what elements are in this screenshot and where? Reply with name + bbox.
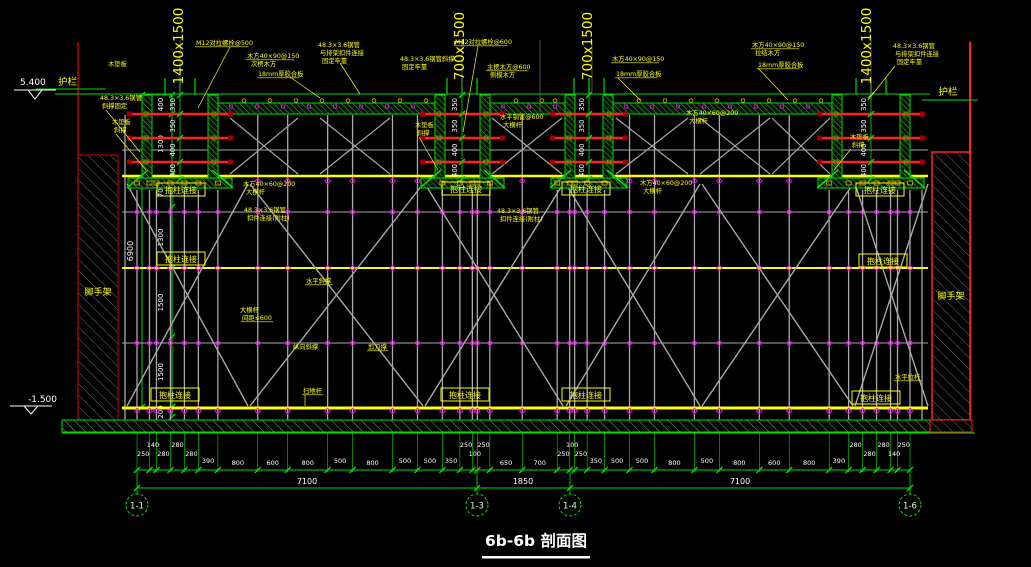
annotation-label: 18mm厚胶合板 (258, 69, 304, 78)
boxed-label-text: 抱柱连接 (165, 254, 197, 264)
grid-bubble-label: 1-4 (563, 502, 577, 512)
u-head-marker (268, 99, 272, 103)
annotation-label: 大横杆 (503, 120, 523, 129)
beam-dim-text: 400 (578, 164, 586, 177)
bottom-dim-text: 250 (898, 441, 910, 449)
leader-line (758, 68, 788, 100)
tie-end-plate (500, 136, 505, 141)
annotation-label: 固定牢靠 (897, 57, 923, 66)
annotation-label: 纵向斜撑 (293, 342, 319, 351)
left-dim-text: 1500 (157, 294, 165, 312)
annotation-label: 扣件连接(附柱) (247, 213, 290, 222)
overall-height-dim: 6900 (126, 241, 135, 261)
annotation-label: 木垫板 (850, 132, 870, 141)
wall-base-hatch (930, 420, 972, 432)
u-head-marker (320, 99, 324, 103)
total-dim-left: 7100 (297, 477, 317, 486)
scaffold-label-left: 脚手架 (84, 286, 111, 298)
boxed-label-text: 抱柱连接 (860, 393, 892, 403)
tie-end-plate (500, 160, 505, 165)
annotation-label: 大横杆 (240, 305, 260, 314)
bottom-dim-text: 350 (590, 457, 602, 465)
annotation-label: 拉结木方 (755, 48, 780, 57)
annotation-label: 木方40×60@200 (686, 108, 738, 117)
left-dim-text: 1500 (157, 363, 165, 381)
u-head-marker (767, 99, 771, 103)
grid-bubble-label: 1-1 (130, 502, 144, 512)
beam-dim-text: 400 (169, 164, 177, 177)
tie-end-plate (550, 112, 555, 117)
boxed-label-text: 抱柱连接 (449, 390, 481, 400)
annotation-label: 水平钢管@600 (500, 112, 544, 121)
u-head-marker (540, 99, 544, 103)
annotation-label: 扣件连接(附柱) (500, 214, 543, 223)
u-head-marker (294, 99, 298, 103)
beam-dim-text: 350 (860, 98, 868, 111)
generated-drawing: 4001300700130015001500200350350400400350… (10, 37, 978, 494)
total-dim-right: 7100 (730, 477, 750, 486)
bottom-dim-text: 250 (137, 450, 149, 458)
beam-dim-text: 350 (451, 120, 459, 133)
tie-end-plate (420, 112, 425, 117)
tie-end-plate (920, 136, 925, 141)
beam-dim-text: 400 (578, 144, 586, 157)
u-head-marker (346, 99, 350, 103)
annotation-label: 剪刀撑 (368, 342, 388, 351)
annotation-label: 大横杆 (689, 116, 709, 125)
guardrail-label-left: 护栏 (58, 76, 78, 88)
bottom-dim-text: 280 (157, 450, 169, 458)
tie-end-plate (550, 136, 555, 141)
annotation-label: 斜撑 (417, 128, 430, 137)
leader-line (618, 78, 640, 100)
annotation-label: M12对拉螺栓@500 (196, 38, 253, 47)
annotation-label: 主楞木方@600 (487, 62, 531, 71)
annotation-label: 间距≤600 (242, 314, 272, 322)
annotation-label: 48.3×3.6钢管 (244, 205, 286, 214)
grid-bubble-label: 1-6 (903, 502, 917, 512)
title-underline (482, 556, 590, 559)
bottom-dim-text: 140 (888, 450, 900, 458)
bottom-dim-text: 500 (399, 457, 411, 465)
annotation-label: 固定牢靠 (402, 62, 428, 71)
tie-end-plate (920, 112, 925, 117)
annotation-label: 大横杆 (643, 186, 663, 195)
tie-end-plate (228, 160, 233, 165)
bottom-dim-text: 100 (566, 441, 578, 449)
annotation-label: 木垫板 (415, 120, 435, 129)
leader-line (290, 77, 320, 98)
beam-dim-text: 400 (169, 144, 177, 157)
left-dim-text: 400 (157, 98, 165, 111)
bottom-dim-text: 390 (833, 457, 845, 465)
bottom-dim-text: 800 (366, 459, 378, 467)
annotation-label: 水平拉杆 (895, 372, 921, 381)
right-wall-hatch (932, 152, 970, 420)
annotation-label: 扫地杆 (303, 386, 323, 395)
beam-dim-text: 350 (169, 120, 177, 133)
left-dim-text: 1300 (157, 229, 165, 247)
u-head-marker (372, 99, 376, 103)
elevation-bottom: -1.500 (28, 395, 57, 405)
bottom-dim-text: 280 (185, 450, 197, 458)
section-drawing: 4001300700130015001500200350350400400350… (0, 0, 1031, 567)
u-head-marker (398, 99, 402, 103)
u-head-marker (689, 99, 693, 103)
bottom-dim-text: 500 (701, 457, 713, 465)
grid-bubble-label: 1-3 (470, 502, 484, 512)
bottom-dim-text: 650 (500, 459, 512, 467)
tie-end-plate (550, 160, 555, 165)
tie-end-plate (623, 160, 628, 165)
u-head-marker (553, 99, 557, 103)
leader-line (106, 110, 140, 152)
annotation-label: 大横杆 (246, 187, 266, 196)
u-head-marker (819, 99, 823, 103)
bottom-dim-text: 250 (477, 441, 489, 449)
beam-size-label-2: 700x1500 (452, 12, 468, 80)
bottom-dim-text: 800 (232, 459, 244, 467)
annotation-label: 48.3×3.6钢管 (100, 93, 142, 102)
bottom-dim-text: 100 (469, 450, 481, 458)
ground-hatch (62, 420, 930, 432)
cad-canvas: 4001300700130015001500200350350400400350… (0, 0, 1031, 567)
bottom-dim-text: 800 (733, 459, 745, 467)
tie-end-plate (127, 160, 132, 165)
beam-dim-text: 350 (451, 98, 459, 111)
bottom-dim-text: 390 (202, 457, 214, 465)
bottom-dim-text: 500 (636, 457, 648, 465)
drawing-title: 6b-6b 剖面图 (485, 531, 587, 550)
beam-dim-text: 400 (451, 164, 459, 177)
annotation-label: 18mm厚胶合板 (616, 69, 662, 78)
beam-dim-text: 350 (860, 120, 868, 133)
beam-dim-text: 350 (578, 98, 586, 111)
slab-formwork-band (218, 103, 435, 114)
annotation-label: 48.3×3.6钢管 (893, 41, 935, 50)
tie-end-plate (228, 136, 233, 141)
tie-end-plate (127, 112, 132, 117)
annotation-label: 木垫板 (108, 59, 128, 68)
boxed-label-text: 抱柱连接 (450, 184, 482, 194)
annotation-label: 48.3×3.6钢管 (497, 206, 539, 215)
bottom-dim-text: 500 (334, 457, 346, 465)
u-head-marker (793, 99, 797, 103)
tie-end-plate (420, 160, 425, 165)
annotation-label: 水平斜撑 (306, 276, 332, 285)
beam-size-label-1: 1400x1500 (171, 8, 187, 85)
annotation-label: 次楞木方 (251, 59, 276, 68)
u-head-marker (242, 99, 246, 103)
bottom-dim-text: 250 (460, 441, 472, 449)
beam-dim-text: 400 (860, 164, 868, 177)
annotation-label: 木方40×60@200 (243, 179, 295, 188)
boxed-label-text: 抱柱连接 (159, 390, 191, 400)
guardrail-label-right: 护栏 (938, 86, 958, 98)
elevation-triangle-icon (24, 406, 38, 414)
tie-end-plate (623, 112, 628, 117)
u-head-marker (514, 99, 518, 103)
beam-size-label-3: 700x1500 (580, 12, 596, 80)
bottom-dim-text: 280 (849, 441, 861, 449)
annotation-label: 斜撑固定 (102, 101, 128, 110)
annotation-label: 木方40×90@150 (752, 40, 804, 49)
annotation-label: 与排架扣件连接 (895, 49, 940, 58)
annotation-label: 18mm厚胶合板 (758, 60, 804, 69)
tie-end-plate (228, 112, 233, 117)
bottom-dim-text: 800 (668, 459, 680, 467)
annotation-label: 固定牢靠 (322, 56, 348, 65)
tie-end-plate (817, 136, 822, 141)
annotation-label: 木方40×60@200 (640, 178, 692, 187)
bottom-dim-text: 800 (301, 459, 313, 467)
bottom-dim-text: 600 (267, 459, 279, 467)
bottom-dim-text: 280 (171, 441, 183, 449)
u-head-marker (741, 99, 745, 103)
beam-dim-text: 350 (169, 98, 177, 111)
total-dim-middle: 1850 (513, 477, 533, 486)
boxed-label-text: 抱柱连接 (867, 256, 899, 266)
u-head-marker (663, 99, 667, 103)
annotation-label: 斜撑 (852, 140, 865, 149)
beam-dim-text: 350 (578, 120, 586, 133)
bottom-dim-text: 250 (575, 450, 587, 458)
boxed-label-text: 抱柱连接 (570, 390, 602, 400)
tie-end-plate (623, 136, 628, 141)
bottom-dim-text: 280 (877, 441, 889, 449)
bottom-dim-text: 140 (147, 441, 159, 449)
bottom-dim-text: 500 (611, 457, 623, 465)
annotation-label: 48.3×3.6钢管斜撑 (400, 54, 455, 63)
bottom-dim-text: 250 (557, 450, 569, 458)
beam-size-label-4: 1400x1500 (859, 8, 875, 85)
boxed-label-text: 抱柱连接 (570, 184, 602, 194)
bottom-dim-text: 350 (445, 457, 457, 465)
tie-end-plate (127, 136, 132, 141)
annotation-label: 48.3×3.6钢管 (318, 40, 360, 49)
u-head-marker (424, 99, 428, 103)
annotation-label: 斜撑 (114, 125, 127, 134)
boxed-label-text: 抱柱连接 (165, 185, 197, 195)
bottom-dim-text: 800 (803, 459, 815, 467)
bottom-dim-text: 280 (863, 450, 875, 458)
boxed-label-text: 抱柱连接 (864, 185, 896, 195)
tie-end-plate (817, 112, 822, 117)
scaffold-label-right: 脚手架 (937, 290, 964, 302)
u-head-marker (715, 99, 719, 103)
elevation-triangle-icon (28, 90, 42, 99)
bottom-dim-text: 700 (534, 459, 546, 467)
beam-dim-text: 400 (451, 144, 459, 157)
bottom-dim-text: 500 (424, 457, 436, 465)
elevation-top: 5.400 (20, 78, 46, 88)
annotation-label: 与排架扣件连接 (320, 48, 365, 57)
annotation-label: 木方40×90@150 (612, 54, 664, 63)
tie-end-plate (817, 160, 822, 165)
bottom-dim-text: 600 (768, 459, 780, 467)
leader-line (340, 63, 360, 94)
annotation-label: 侧模木方 (490, 70, 515, 79)
tie-end-plate (920, 160, 925, 165)
annotation-label: 木方40×90@150 (247, 51, 299, 60)
